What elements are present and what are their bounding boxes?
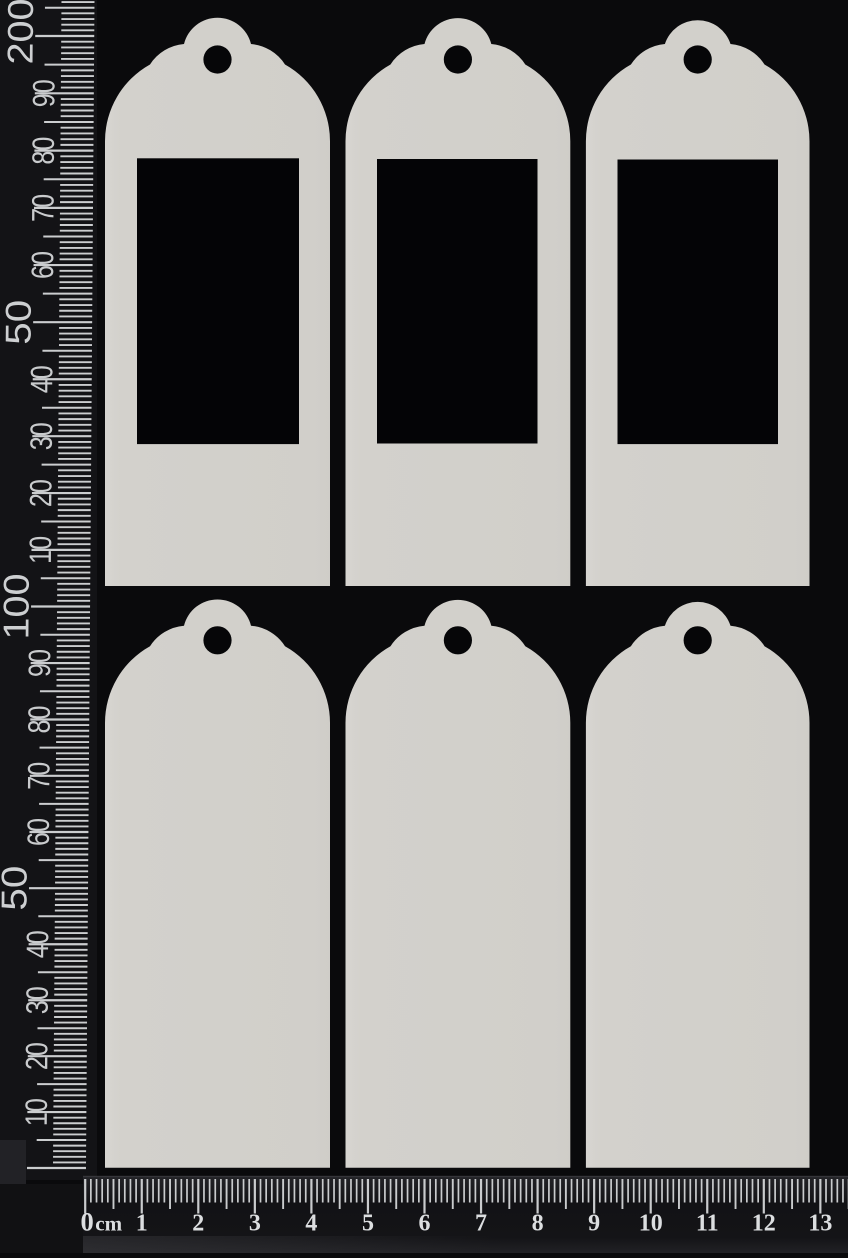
svg-text:40: 40: [20, 930, 55, 958]
svg-text:70: 70: [21, 762, 56, 790]
svg-text:90: 90: [26, 79, 61, 107]
svg-text:80: 80: [22, 705, 57, 733]
svg-text:12: 12: [752, 1211, 776, 1237]
svg-text:60: 60: [21, 818, 56, 846]
svg-text:3: 3: [249, 1211, 261, 1237]
svg-text:0cm: 0cm: [81, 1207, 123, 1237]
svg-text:9: 9: [588, 1211, 600, 1237]
svg-text:5: 5: [362, 1211, 374, 1237]
svg-text:30: 30: [24, 422, 59, 450]
svg-text:10: 10: [19, 1098, 54, 1126]
svg-text:4: 4: [305, 1211, 317, 1237]
svg-text:50: 50: [0, 866, 35, 911]
svg-text:8: 8: [532, 1211, 544, 1237]
svg-text:1: 1: [136, 1211, 148, 1237]
svg-text:200: 200: [0, 0, 41, 65]
svg-text:2: 2: [192, 1211, 204, 1237]
svg-text:10: 10: [639, 1211, 663, 1237]
svg-text:30: 30: [20, 986, 55, 1014]
svg-text:50: 50: [0, 300, 39, 345]
svg-text:70: 70: [25, 194, 60, 222]
svg-text:6: 6: [419, 1211, 431, 1237]
svg-text:90: 90: [22, 649, 57, 677]
svg-text:100: 100: [0, 574, 37, 640]
svg-text:40: 40: [24, 365, 59, 393]
svg-text:10: 10: [23, 536, 58, 564]
svg-text:20: 20: [19, 1042, 54, 1070]
svg-text:13: 13: [808, 1211, 832, 1237]
svg-text:20: 20: [23, 479, 58, 507]
svg-text:11: 11: [696, 1211, 719, 1237]
svg-text:60: 60: [25, 251, 60, 279]
svg-text:7: 7: [475, 1211, 487, 1237]
svg-text:80: 80: [26, 137, 61, 165]
